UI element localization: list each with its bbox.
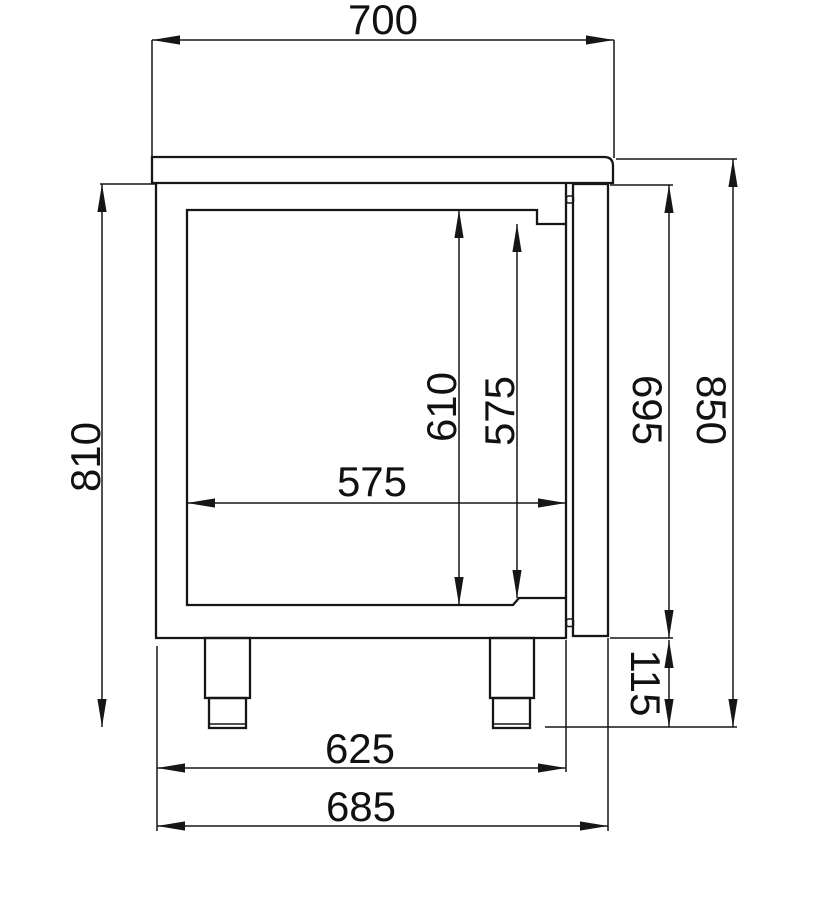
dim-label-810: 810 bbox=[62, 422, 109, 492]
technical-drawing: 700 810 610 575 575 695 850 115 bbox=[0, 0, 828, 900]
dim-label-610: 610 bbox=[418, 372, 465, 442]
dim-label-575-vertical: 575 bbox=[476, 376, 523, 446]
dim-label-115: 115 bbox=[622, 650, 669, 717]
drawing-canvas: 700 810 610 575 575 695 850 115 bbox=[0, 0, 828, 900]
door-panel bbox=[573, 184, 608, 636]
leg-left bbox=[205, 638, 250, 698]
dimension-door-opening-height: 575 bbox=[476, 224, 523, 598]
dimension-interior-depth: 575 bbox=[187, 458, 566, 505]
dim-label-850: 850 bbox=[688, 375, 735, 445]
leg-right bbox=[490, 638, 534, 698]
dimension-body-height: 810 bbox=[62, 184, 157, 727]
dimension-worktop-depth: 700 bbox=[152, 0, 614, 158]
worktop bbox=[152, 157, 613, 183]
dimension-interior-height: 610 bbox=[418, 210, 465, 605]
dimension-door-height: 695 bbox=[610, 185, 673, 638]
dim-label-700: 700 bbox=[348, 0, 418, 43]
dim-label-695: 695 bbox=[624, 375, 671, 445]
dim-label-685: 685 bbox=[326, 783, 396, 830]
dim-label-625: 625 bbox=[325, 725, 395, 772]
dim-label-575-horizontal: 575 bbox=[337, 458, 407, 505]
dimension-leg-height: 115 bbox=[622, 640, 669, 727]
